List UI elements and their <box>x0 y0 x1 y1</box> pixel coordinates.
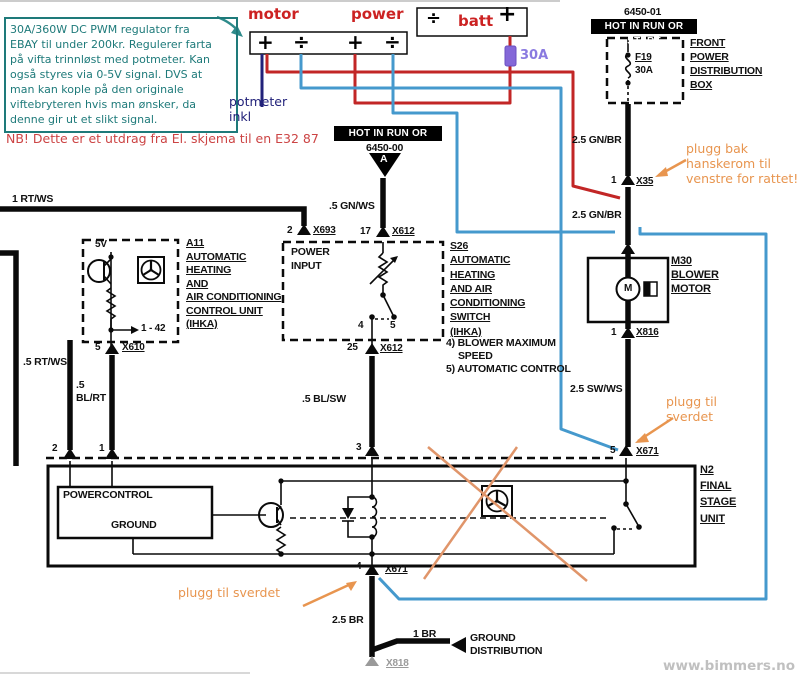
x818-name: X818 <box>386 658 409 670</box>
batt-plus-terminal: + <box>498 5 516 25</box>
s26-note-4b: SPEED <box>458 350 493 363</box>
n2-ground-label: GROUND <box>111 519 156 532</box>
wire-1-br <box>372 641 450 650</box>
connector-x35 <box>621 174 635 185</box>
power-label: power <box>351 5 403 23</box>
info-box-note: 30A/360W DC PWM regulator fra EBAY til u… <box>4 17 238 133</box>
connector-unit-2 <box>63 448 77 459</box>
wire-label-gn-ws: .5 GN/WS <box>329 200 375 213</box>
potmeter-note: potmeter inkl <box>229 94 287 124</box>
n2-pin-2: 2 <box>52 443 57 455</box>
x612-25-pin: 25 <box>347 342 358 354</box>
wire-left-edge <box>0 253 16 466</box>
connector-x693 <box>297 224 311 235</box>
n2-resistor <box>277 527 285 553</box>
n2-control-label: CONTROL <box>102 489 153 502</box>
m30-title: M30 BLOWER MOTOR <box>671 254 719 296</box>
front-power-distribution-box-label: FRONT POWER DISTRIBUTION BOX <box>690 36 762 92</box>
connector-x817 <box>621 243 635 254</box>
s26-switch-arm <box>383 295 393 315</box>
part-no-6450-01: 6450-01 <box>624 6 661 19</box>
wire-label-br-25: 2.5 BR <box>332 614 363 627</box>
n2-power-label: POWER <box>63 489 102 502</box>
wire-label-rt-ws-1: 1 RT/WS <box>12 193 53 206</box>
m30-motor-letter: M <box>624 283 632 295</box>
hot-in-run-badge-top: HOT IN RUN OR START <box>591 19 697 34</box>
m30-small-icon-fill <box>644 282 651 296</box>
site-watermark: www.bimmers.no <box>663 658 795 674</box>
connector-x612-25 <box>365 343 379 354</box>
wire-label-bl-sw: .5 BL/SW <box>302 393 346 406</box>
motor-label: motor <box>248 5 299 23</box>
connector-unit-3 <box>365 445 379 456</box>
x816-name: X816 <box>636 327 659 339</box>
s26-note-4: 4) BLOWER MAXIMUM <box>446 337 556 350</box>
wiring-diagram-page: 30A/360W DC PWM regulator fra EBAY til u… <box>0 0 810 679</box>
nb-note: NB! Dette er et utdrag fra El. skjema ti… <box>6 131 319 146</box>
a11-pin-range: 1 - 42 <box>141 323 165 335</box>
x671-5-name: X671 <box>636 446 659 458</box>
batt-label: batt <box>458 12 493 30</box>
x35-pin: 1 <box>611 175 616 187</box>
wire-label-gn-br-1: 2.5 GN/BR <box>572 134 622 147</box>
s26-note-5: 5) AUTOMATIC CONTROL <box>446 363 571 376</box>
ground-distribution-arrow <box>451 637 466 653</box>
ground-distribution-label: GROUND DISTRIBUTION <box>470 632 542 658</box>
a11-5v-label: 5V <box>95 239 107 251</box>
inline-fuse-30a <box>505 46 516 66</box>
wire-label-rt-ws-05: .5 RT/WS <box>23 356 67 369</box>
wire-label-sw-ws: 2.5 SW/WS <box>570 383 622 396</box>
s26-title: S26 AUTOMATIC HEATING AND AIR CONDITIONI… <box>450 239 525 339</box>
x612-17-name: X612 <box>392 226 415 238</box>
x671-5-pin: 5 <box>610 445 615 457</box>
red-wires <box>267 36 620 198</box>
n2-coil <box>372 497 377 537</box>
x612-25-name: X612 <box>380 343 403 355</box>
red-motor-plus-feed <box>267 54 620 198</box>
batt-minus-terminal: ÷ <box>426 9 441 29</box>
arrow-to-x671-4 <box>303 583 353 606</box>
x671-4-name: X671 <box>385 564 408 576</box>
red-fuse-to-power-plus <box>355 54 510 103</box>
s26-switch-pos-5: 5 <box>390 320 395 332</box>
wire-label-gn-br-2: 2.5 GN/BR <box>572 209 622 222</box>
connector-x612-17 <box>376 226 390 237</box>
x816-pin: 1 <box>611 327 616 339</box>
fuse-30a-label: 30A <box>520 48 548 63</box>
connector-x818 <box>365 656 379 666</box>
regulator-terminal-power-plus: + <box>347 32 364 52</box>
connector-x671-5 <box>619 445 633 456</box>
x610-name: X610 <box>122 342 145 354</box>
x612-17-pin: 17 <box>360 226 371 238</box>
x671-4-pin: 4 <box>356 561 361 573</box>
connector-x816 <box>621 327 635 338</box>
wire-1-rt-ws <box>0 209 304 226</box>
note-plug-sword-bottom: plugg til sverdet <box>178 585 280 600</box>
n2-title: N2 FINAL STAGE UNIT <box>700 462 736 527</box>
s26-power-input-label: POWER INPUT <box>291 246 330 273</box>
x693-pin: 2 <box>287 225 292 237</box>
wire-label-br-1: 1 BR <box>413 628 436 641</box>
regulator-terminal-motor-minus: ÷ <box>293 32 310 52</box>
feed-triangle-letter: A <box>380 153 387 166</box>
x693-name: X693 <box>313 225 336 237</box>
x35-name: X35 <box>636 176 653 188</box>
s26-switch-pos-4: 4 <box>358 320 363 332</box>
connector-x610 <box>105 343 119 354</box>
a11-title: A11 AUTOMATIC HEATING AND AIR CONDITIONI… <box>186 237 281 332</box>
fuse-f19-rating: 30A <box>635 65 653 77</box>
connector-symbols <box>63 174 635 666</box>
wire-label-bl-rt: .5 BL/RT <box>76 379 106 404</box>
fuse-f19-label: F19 <box>635 52 652 64</box>
connector-unit-1 <box>105 448 119 459</box>
n2-switch-arm <box>626 504 638 525</box>
note-plug-sword-right: plugg til sverdet <box>666 394 717 424</box>
regulator-terminal-power-minus: ÷ <box>384 32 401 52</box>
note-plug-glovebox: plugg bak hanskerom til venstre for ratt… <box>686 141 798 186</box>
x610-pin: 5 <box>95 342 100 354</box>
regulator-terminal-motor-plus: + <box>257 32 274 52</box>
n2-pin-3: 3 <box>356 442 361 454</box>
hot-in-run-badge-center: HOT IN RUN OR START <box>334 126 442 141</box>
a11-resistor <box>107 288 115 330</box>
n2-pin-1: 1 <box>99 443 104 455</box>
